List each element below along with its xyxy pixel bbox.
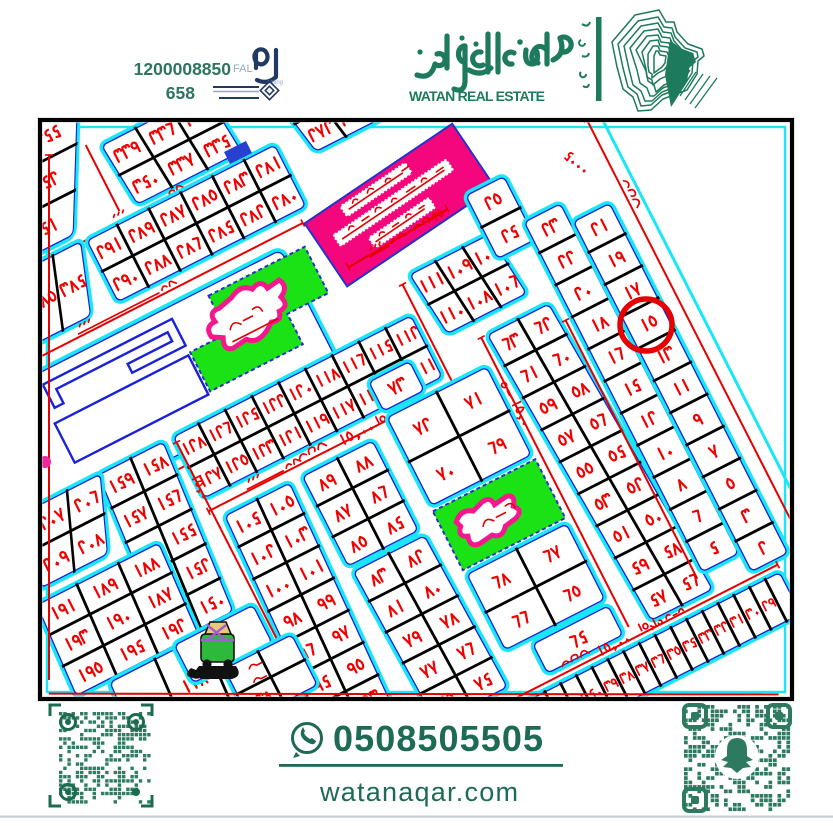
svg-text:0508505505: 0508505505 (333, 718, 543, 759)
svg-text:FAL: FAL (233, 63, 253, 75)
svg-text:WATAN REAL ESTATE: WATAN REAL ESTATE (409, 88, 545, 104)
svg-text:658: 658 (166, 83, 195, 103)
svg-text:1200008850: 1200008850 (134, 59, 232, 79)
svg-text:watanaqar.com: watanaqar.com (319, 777, 518, 807)
